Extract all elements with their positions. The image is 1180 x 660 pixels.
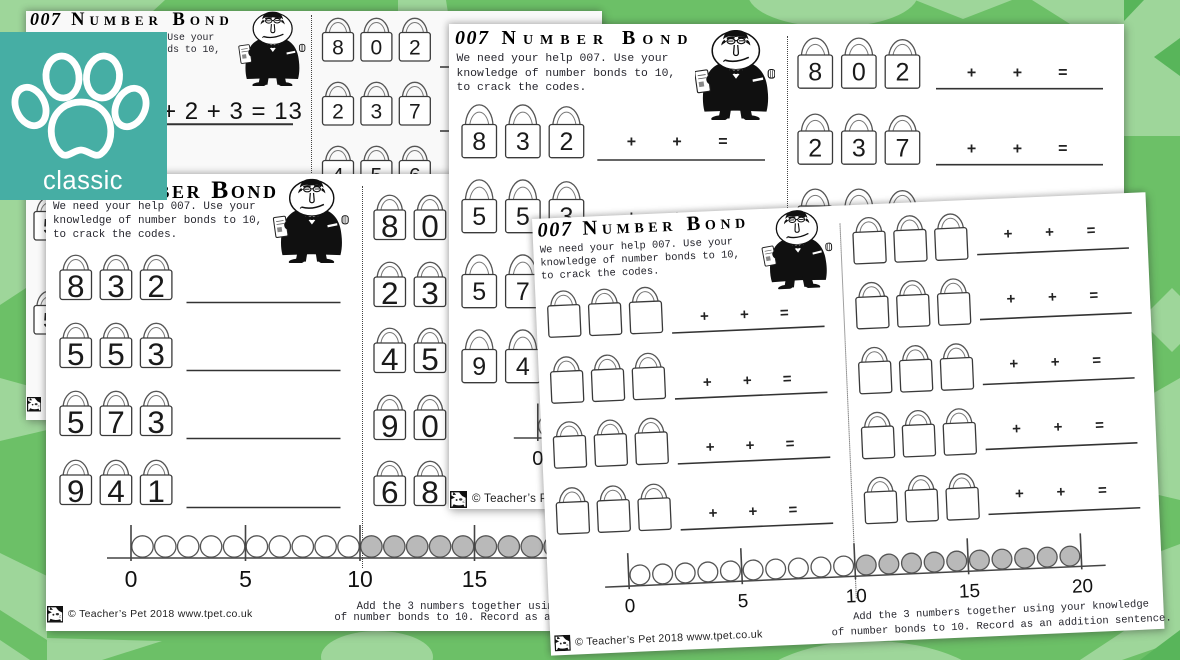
- svg-text:20: 20: [1072, 576, 1094, 598]
- svg-text:classic: classic: [43, 167, 123, 195]
- svg-text:0: 0: [125, 566, 138, 592]
- svg-text:15: 15: [958, 581, 980, 603]
- svg-text:10: 10: [845, 586, 867, 608]
- svg-text:0: 0: [624, 596, 635, 617]
- svg-text:5: 5: [737, 591, 748, 612]
- svg-text:15: 15: [462, 566, 488, 592]
- svg-text:10: 10: [347, 566, 373, 592]
- svg-text:5: 5: [239, 566, 252, 592]
